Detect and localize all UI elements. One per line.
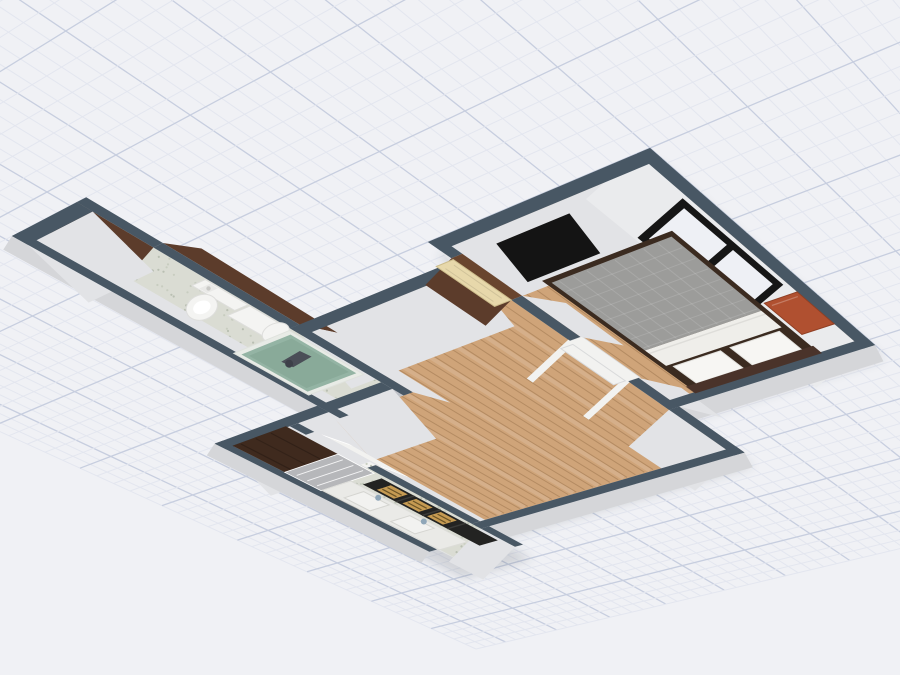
speck xyxy=(173,295,175,297)
speck xyxy=(456,551,458,553)
speck xyxy=(167,263,169,265)
speck xyxy=(158,256,160,258)
speck xyxy=(157,269,159,271)
speck xyxy=(227,330,229,332)
speck xyxy=(166,289,168,291)
floorplan-scene[interactable] xyxy=(0,0,900,675)
speck xyxy=(226,309,228,311)
speck xyxy=(170,294,172,296)
speck xyxy=(173,274,175,276)
speck xyxy=(360,483,362,485)
speck xyxy=(223,314,225,316)
speck xyxy=(161,285,163,287)
speck xyxy=(166,266,168,268)
speck xyxy=(168,258,170,260)
speck xyxy=(186,291,188,293)
shower-knob[interactable] xyxy=(285,360,293,368)
faucet[interactable] xyxy=(421,519,427,525)
faucet[interactable] xyxy=(375,495,381,501)
flush-button[interactable] xyxy=(206,286,210,290)
speck xyxy=(326,390,328,392)
speck xyxy=(156,284,158,286)
floorplan-3d-canvas[interactable]: 3D Floor Plan View xyxy=(0,0,900,675)
speck xyxy=(250,335,252,337)
speck xyxy=(460,545,462,547)
speck xyxy=(162,271,164,273)
speck xyxy=(242,328,244,330)
speck xyxy=(226,328,228,330)
speck xyxy=(420,497,422,499)
speck xyxy=(190,285,192,287)
speck xyxy=(252,342,254,344)
